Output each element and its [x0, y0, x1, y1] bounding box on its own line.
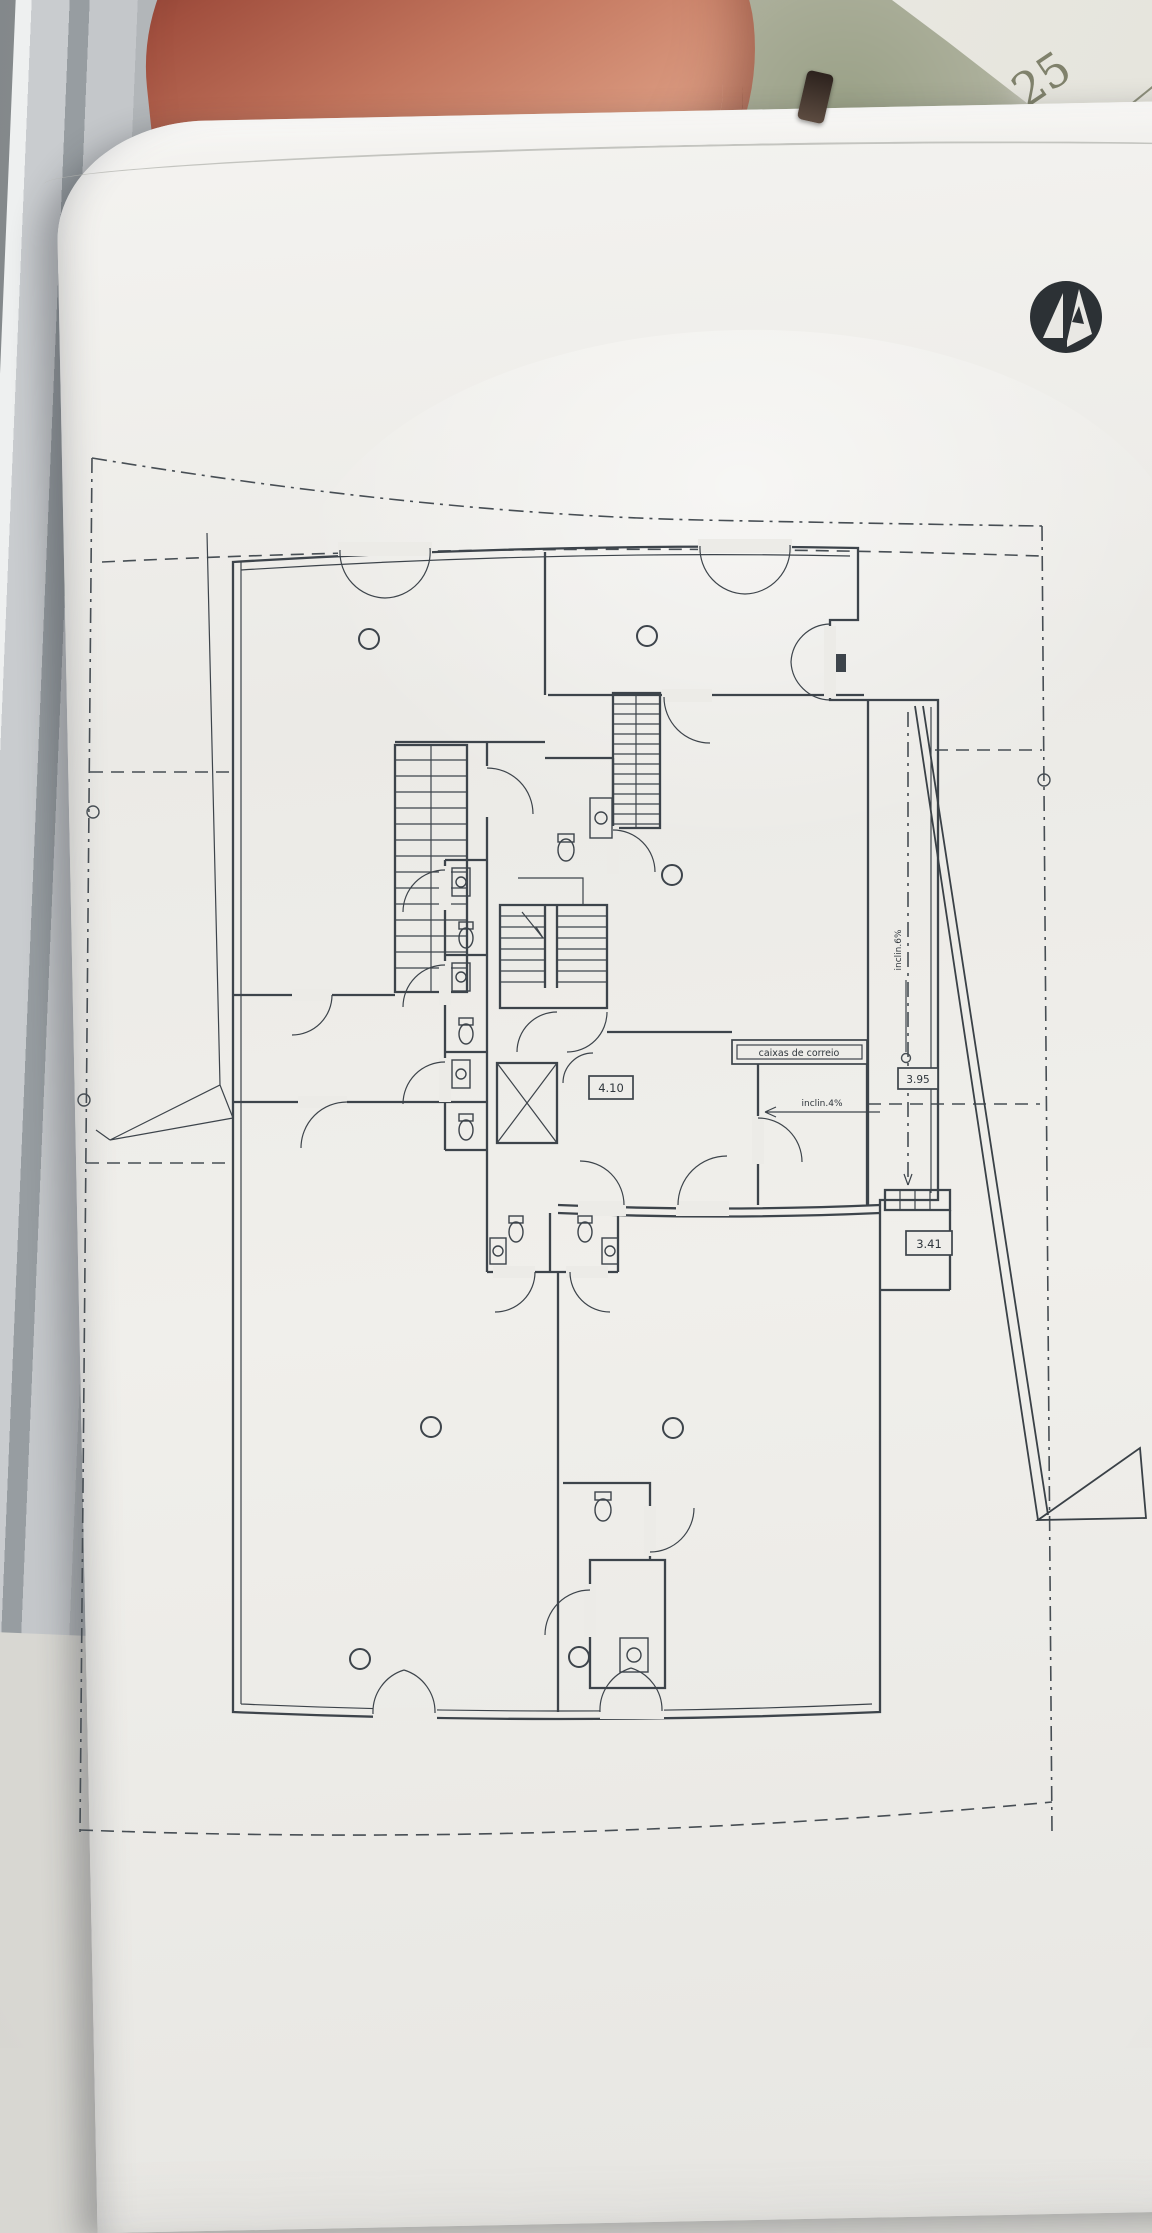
exterior-steps: [885, 980, 950, 1210]
mailboxes: caixas de correio: [732, 1040, 867, 1064]
side-ramp: inclin.6%: [894, 706, 1146, 1520]
stair-central: [500, 878, 607, 1008]
stair-top-right: [613, 693, 660, 828]
entry-ramp-slope-label: inclin.4%: [802, 1099, 843, 1109]
building-outline: [233, 547, 938, 1719]
elevator-shaft: [497, 1063, 557, 1143]
dim-ramp-top: 3.95: [906, 1074, 929, 1086]
door-arcs: [292, 545, 830, 1714]
architect-logo-icon: [1030, 281, 1102, 353]
door-openings: [292, 539, 836, 1721]
dimension-labels: 4.10 3.95 3.41: [589, 1068, 952, 1255]
floor-plan-drawing: caixas de correio inclin.6% inclin.4% 4.…: [0, 0, 1152, 2048]
interior-walls: [233, 552, 950, 1712]
site-boundary: [78, 458, 1052, 1835]
door-hatch-mark: [836, 654, 846, 672]
side-ramp-slope-label: inclin.6%: [894, 929, 904, 970]
dim-ramp-bottom: 3.41: [916, 1237, 942, 1251]
column-markers: [350, 626, 683, 1669]
dim-hall-width: 4.10: [598, 1081, 624, 1095]
entry-ramp: inclin.4%: [765, 1099, 880, 1117]
mailboxes-label: caixas de correio: [759, 1048, 840, 1059]
